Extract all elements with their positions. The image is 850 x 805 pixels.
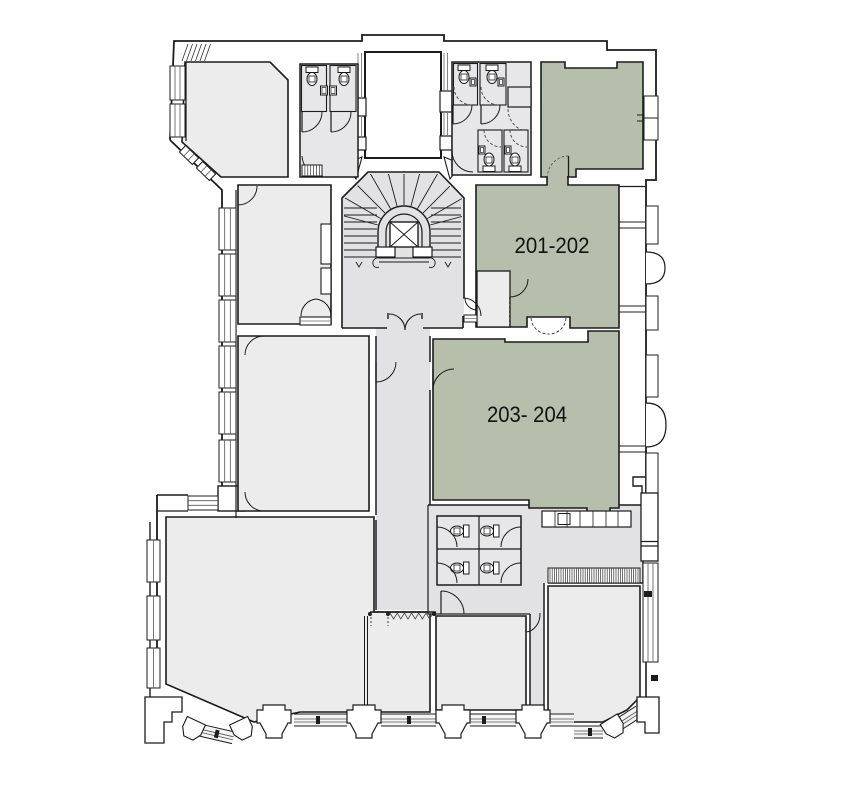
svg-text:201-202: 201-202 [515,233,590,258]
svg-text:203- 204: 203- 204 [487,402,567,427]
